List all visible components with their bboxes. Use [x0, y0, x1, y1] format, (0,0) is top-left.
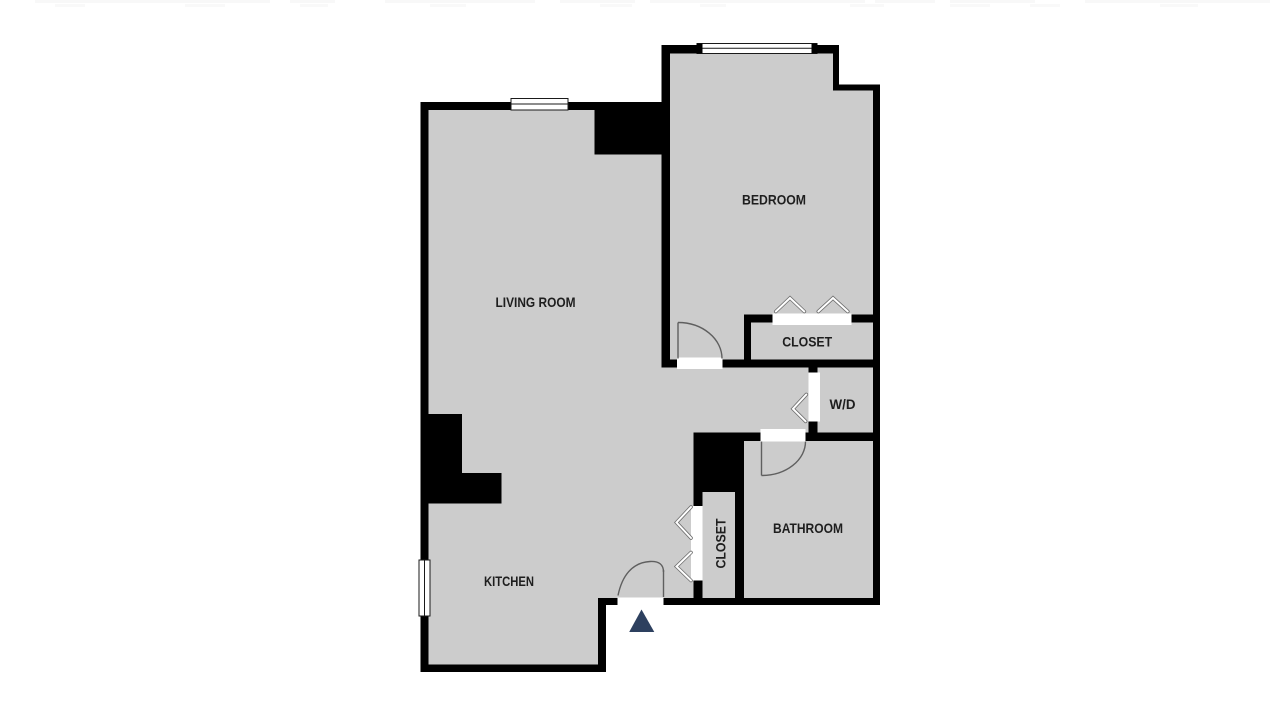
- svg-text:KITCHEN: KITCHEN: [484, 573, 534, 589]
- svg-text:LIVING ROOM: LIVING ROOM: [496, 294, 576, 310]
- svg-text:BEDROOM: BEDROOM: [742, 191, 806, 207]
- svg-text:BATHROOM: BATHROOM: [773, 520, 843, 536]
- svg-text:W/D: W/D: [830, 396, 856, 412]
- svg-text:CLOSET: CLOSET: [782, 334, 832, 350]
- svg-text:CLOSET: CLOSET: [713, 518, 729, 568]
